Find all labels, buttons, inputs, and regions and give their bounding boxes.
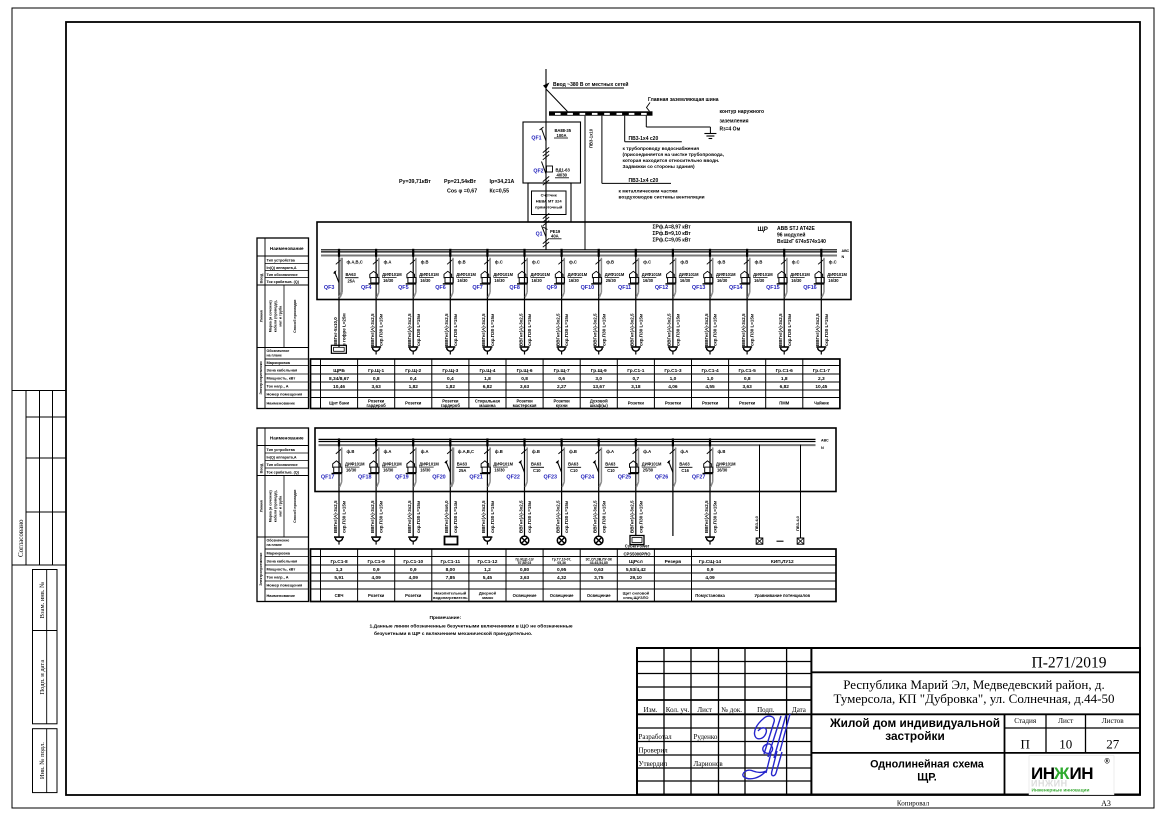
svg-text:ΣРф.А=8,97 кВт: ΣРф.А=8,97 кВт <box>653 224 692 231</box>
svg-text:Ру=39,71кВт: Ру=39,71кВт <box>399 179 431 185</box>
svg-text:АВС: АВС <box>821 439 829 443</box>
svg-text:16/30: 16/30 <box>383 468 394 473</box>
svg-text:16/30: 16/30 <box>420 468 431 473</box>
svg-text:ДИФ101М: ДИФ101М <box>716 272 736 277</box>
svg-text:Освещение: Освещение <box>513 593 537 598</box>
svg-text:ДИФ101М: ДИФ101М <box>382 272 402 277</box>
svg-text:2,3: 2,3 <box>818 376 825 382</box>
svg-text:ΣРф.С=9,05 кВт: ΣРф.С=9,05 кВт <box>653 236 692 243</box>
svg-text:Гр.С1-4: Гр.С1-4 <box>701 368 719 374</box>
svg-text:ВВГнг(А)-3х2,5: ВВГнг(А)-3х2,5 <box>481 500 486 533</box>
svg-text:8,34/8,67: 8,34/8,67 <box>329 376 349 382</box>
svg-text:шкаф(ы): шкаф(ы) <box>590 403 609 408</box>
svg-text:QF24: QF24 <box>581 475 594 481</box>
svg-text:57,ВУ,03: 57,ВУ,03 <box>518 561 532 565</box>
svg-text:Однолинейная схема: Однолинейная схема <box>870 759 985 771</box>
svg-text:ВВГнг(А)-3х2,5: ВВГнг(А)-3х2,5 <box>333 500 338 533</box>
svg-text:Марка (и сечение): Марка (и сечение) <box>269 299 273 332</box>
svg-text:гардероб: гардероб <box>367 403 387 408</box>
svg-text:Лист: Лист <box>697 706 712 714</box>
svg-text:ABB STJ AT42E: ABB STJ AT42E <box>777 226 815 232</box>
svg-text:скр.ПЗ0 L=15м: скр.ПЗ0 L=15м <box>638 313 643 346</box>
svg-text:Гр.Щ-1: Гр.Щ-1 <box>368 368 384 374</box>
svg-text:4,09: 4,09 <box>371 575 381 581</box>
svg-text:ЩРБ: ЩРБ <box>333 368 345 374</box>
svg-text:Розетки: Розетки <box>405 593 422 598</box>
svg-text:Гр.Щ-3: Гр.Щ-3 <box>442 368 458 374</box>
svg-text:0,6: 0,6 <box>558 376 565 382</box>
svg-text:13,67: 13,67 <box>593 384 605 390</box>
svg-text:ПВ3-4,0: ПВ3-4,0 <box>795 515 800 531</box>
svg-text:N: N <box>842 255 845 259</box>
svg-text:0,4: 0,4 <box>447 376 454 382</box>
svg-text:0,9: 0,9 <box>410 567 417 573</box>
svg-text:Ток срабатыв. (Q): Ток срабатыв. (Q) <box>267 280 300 284</box>
svg-text:QF13: QF13 <box>692 285 705 291</box>
svg-text:СyberPower: СyberPower <box>625 544 650 549</box>
svg-text:ВВГнг(А)-3х2,5: ВВГнг(А)-3х2,5 <box>630 313 635 346</box>
svg-text:QF21: QF21 <box>469 475 482 481</box>
svg-text:Ларионов: Ларионов <box>694 760 724 768</box>
svg-text:застройки: застройки <box>885 729 944 743</box>
svg-text:ф.В: ф.В <box>606 259 614 264</box>
svg-text:Гр.С1-12: Гр.С1-12 <box>478 559 498 565</box>
svg-text:Гр.Щ-7: Гр.Щ-7 <box>554 368 570 374</box>
svg-text:Гр.С1-3: Гр.С1-3 <box>664 368 682 374</box>
svg-text:Тип обозначение: Тип обозначение <box>267 463 298 467</box>
svg-text:ВВГнг(А)-3х2,5: ВВГнг(А)-3х2,5 <box>370 313 375 346</box>
svg-text:ф.С: ф.С <box>495 259 503 264</box>
svg-text:безучетными в ЩР с включением: безучетными в ЩР с включением механическ… <box>374 630 533 637</box>
svg-text:0,9: 0,9 <box>373 567 380 573</box>
svg-text:Ток срабатыв. (Q): Ток срабатыв. (Q) <box>267 471 300 475</box>
svg-text:Гр.Щ-9: Гр.Щ-9 <box>591 368 607 374</box>
svg-text:QF11: QF11 <box>618 285 631 291</box>
svg-text:Резерв: Резерв <box>665 559 682 565</box>
svg-text:10,45: 10,45 <box>815 384 827 390</box>
svg-text:ВВГнг(А)-3х2,5: ВВГнг(А)-3х2,5 <box>407 313 412 346</box>
svg-text:водонагреватель: водонагреватель <box>433 595 468 600</box>
svg-text:Линия: Линия <box>260 310 264 322</box>
svg-text:Линия: Линия <box>260 500 264 512</box>
svg-text:к металлическим частям: к металлическим частям <box>619 190 679 195</box>
svg-text:3,18: 3,18 <box>631 384 641 390</box>
svg-text:мат и труба: мат и труба <box>279 495 283 517</box>
svg-text:6,82: 6,82 <box>780 384 790 390</box>
svg-text:ф.С: ф.С <box>532 259 540 264</box>
svg-text:0,7: 0,7 <box>633 376 640 382</box>
svg-text:Гр.С1-11: Гр.С1-11 <box>441 559 461 565</box>
svg-text:Дата: Дата <box>792 706 807 714</box>
svg-text:ВВГнг(А)-3х2,5: ВВГнг(А)-3х2,5 <box>370 500 375 533</box>
svg-text:ДИФ101М: ДИФ101М <box>456 272 476 277</box>
svg-text:кухни: кухни <box>556 403 568 408</box>
svg-text:ВА63: ВА63 <box>605 462 616 467</box>
svg-text:воздуховодов системы вентиляци: воздуховодов системы вентиляции <box>619 196 705 201</box>
svg-text:Мощность, кВт: Мощность, кВт <box>267 567 296 572</box>
svg-text:ПВ3-1х4 с20: ПВ3-1х4 с20 <box>629 136 659 142</box>
svg-text:ВВГнг(А)-5х6,0: ВВГнг(А)-5х6,0 <box>444 500 449 533</box>
svg-text:ф.А,В,С: ф.А,В,С <box>458 449 474 454</box>
svg-text:Рр=21,54кВт: Рр=21,54кВт <box>444 179 477 185</box>
svg-text:1.Данные линии обозначенные бе: 1.Данные линии обозначенные безучетными … <box>370 623 573 630</box>
svg-text:16/30: 16/30 <box>828 278 839 283</box>
svg-text:Изм.: Изм. <box>644 706 658 714</box>
svg-text:ДИФ101М: ДИФ101М <box>827 272 847 277</box>
svg-text:Лист: Лист <box>1058 717 1074 725</box>
svg-text:1,0: 1,0 <box>707 376 714 382</box>
svg-text:1,2: 1,2 <box>484 567 491 573</box>
svg-text:ДИФ101М: ДИФ101М <box>382 462 402 467</box>
svg-text:QF9: QF9 <box>547 285 557 291</box>
svg-text:QF8: QF8 <box>509 285 519 291</box>
svg-text:Маркировка: Маркировка <box>267 360 291 365</box>
svg-text:Кс=0,55: Кс=0,55 <box>490 188 510 194</box>
svg-text:16/30: 16/30 <box>383 278 394 283</box>
svg-text:QF19: QF19 <box>395 475 408 481</box>
svg-text:®: ® <box>1105 758 1111 766</box>
svg-text:3,0: 3,0 <box>595 376 602 382</box>
svg-text:Республика Марий Эл, Медведевс: Республика Марий Эл, Медведевский район,… <box>843 677 1104 692</box>
svg-text:Взам. инв. №: Взам. инв. № <box>39 582 46 619</box>
svg-text:ф.А: ф.А <box>680 449 688 454</box>
svg-text:Q1: Q1 <box>536 232 543 238</box>
svg-text:25А: 25А <box>459 468 467 473</box>
svg-text:16/30: 16/30 <box>754 278 765 283</box>
svg-text:43-63,54,85: 43-63,54,85 <box>590 561 608 565</box>
svg-text:29,10: 29,10 <box>630 575 642 581</box>
svg-text:скр.ПЗ0 L=15м: скр.ПЗ0 L=15м <box>416 313 421 346</box>
svg-text:скр.ПЗ0 L=15м: скр.ПЗ0 L=15м <box>601 313 606 346</box>
svg-text:Задвижки со стороны здания): Задвижки со стороны здания) <box>623 164 695 170</box>
svg-text:Розетки: Розетки <box>702 401 719 406</box>
svg-text:Помустановка: Помустановка <box>695 593 725 598</box>
svg-text:скр.ПЗ0 L=15м: скр.ПЗ0 L=15м <box>601 500 606 533</box>
svg-text:3,63: 3,63 <box>742 384 752 390</box>
svg-text:QF25: QF25 <box>618 475 631 481</box>
svg-text:16/30: 16/30 <box>494 468 505 473</box>
svg-text:Подп.: Подп. <box>757 706 775 714</box>
svg-text:ВВГнг(А)-3х2,5: ВВГнг(А)-3х2,5 <box>778 313 783 346</box>
svg-text:05,36: 05,36 <box>557 561 566 565</box>
svg-text:Розетки: Розетки <box>628 401 645 406</box>
svg-text:КИП,ЛУ12: КИП,ЛУ12 <box>771 559 794 565</box>
svg-text:П-271/2019: П-271/2019 <box>1032 655 1107 672</box>
svg-text:скр.ПЗ0 L=15м: скр.ПЗ0 L=15м <box>787 313 792 346</box>
svg-text:6,82: 6,82 <box>483 384 493 390</box>
svg-text:QF7: QF7 <box>472 285 482 291</box>
svg-text:ВВГнг(А)-3х2,5: ВВГнг(А)-3х2,5 <box>593 500 598 533</box>
svg-text:16/30: 16/30 <box>680 278 691 283</box>
svg-text:ф.В: ф.В <box>718 259 726 264</box>
svg-text:ф.В: ф.В <box>532 449 540 454</box>
svg-text:QF27: QF27 <box>692 475 705 481</box>
svg-text:ΣРф.В=9,10 кВт: ΣРф.В=9,10 кВт <box>653 230 692 237</box>
svg-text:замок: замок <box>482 595 494 600</box>
svg-text:ПММ: ПММ <box>779 401 789 406</box>
svg-text:ДИФ101М: ДИФ101М <box>419 462 439 467</box>
svg-text:скр.ПЗ0 L=15м: скр.ПЗ0 L=15м <box>379 313 384 346</box>
svg-text:16/30: 16/30 <box>532 278 543 283</box>
svg-text:4,55: 4,55 <box>705 384 715 390</box>
svg-text:Жилой дом индивидуальной: Жилой дом индивидуальной <box>829 716 1000 730</box>
svg-text:Способ прокладки: Способ прокладки <box>293 300 297 333</box>
svg-text:16/30: 16/30 <box>457 278 468 283</box>
svg-text:Тумерсола, КП "Дубровка", ул.: Тумерсола, КП "Дубровка", ул. Солнечная,… <box>834 691 1115 706</box>
svg-text:скр.ПЗ0 L=15м: скр.ПЗ0 L=15м <box>527 500 532 533</box>
svg-text:3,63: 3,63 <box>520 575 530 581</box>
svg-text:Гр.С1-9: Гр.С1-9 <box>368 559 386 565</box>
svg-text:25/30: 25/30 <box>606 278 617 283</box>
svg-text:АВС: АВС <box>842 249 850 253</box>
svg-text:4,09: 4,09 <box>705 575 715 581</box>
svg-text:ВВГнг(А)-3х2,5: ВВГнг(А)-3х2,5 <box>667 313 672 346</box>
svg-text:3,75: 3,75 <box>594 575 604 581</box>
svg-text:Щит бани: Щит бани <box>329 401 350 406</box>
svg-text:Главная заземляющая шина: Главная заземляющая шина <box>648 97 719 103</box>
svg-text:скр.ПЗ0 L=15м: скр.ПЗ0 L=15м <box>638 500 643 533</box>
svg-text:Rз=4 Ом: Rз=4 Ом <box>720 126 741 132</box>
svg-text:Освещение: Освещение <box>550 593 574 598</box>
svg-text:ф.С: ф.С <box>829 259 837 264</box>
svg-text:QF4: QF4 <box>361 285 371 291</box>
svg-text:10,46: 10,46 <box>333 384 345 390</box>
svg-text:QF5: QF5 <box>398 285 408 291</box>
svg-text:0,95: 0,95 <box>557 567 567 573</box>
svg-text:ф.А: ф.А <box>643 449 651 454</box>
svg-text:Кол. уч.: Кол. уч. <box>666 706 690 714</box>
svg-text:Iн(Q) аппарата,А: Iн(Q) аппарата,А <box>267 456 297 460</box>
svg-text:НЕВА МТ 324: НЕВА МТ 324 <box>536 199 563 204</box>
svg-text:Номер помещения: Номер помещения <box>267 583 303 588</box>
svg-text:ПВ3-1х10: ПВ3-1х10 <box>589 128 594 148</box>
svg-text:ДИФ101М: ДИФ101М <box>642 462 662 467</box>
svg-text:Проверил: Проверил <box>639 746 669 754</box>
svg-text:ВА63: ВА63 <box>346 272 357 277</box>
svg-text:ВхШхГ 674х574х140: ВхШхГ 674х574х140 <box>777 239 826 245</box>
svg-text:Тип обозначение: Тип обозначение <box>267 273 298 277</box>
svg-text:Розетки: Розетки <box>739 401 756 406</box>
svg-text:П: П <box>1021 737 1030 752</box>
svg-text:Розетки: Розетки <box>405 401 422 406</box>
svg-text:ДИФ101М: ДИФ101М <box>642 272 662 277</box>
svg-text:Cos φ =0,67: Cos φ =0,67 <box>447 188 477 194</box>
svg-text:заземления: заземления <box>720 118 749 124</box>
svg-text:кабеля (провода),: кабеля (провода), <box>274 490 278 522</box>
svg-text:ВВГнг(А)-3х2,5: ВВГнг(А)-3х2,5 <box>741 313 746 346</box>
svg-text:Разработал: Разработал <box>639 733 673 741</box>
svg-text:Стадия: Стадия <box>1014 717 1037 725</box>
svg-text:скр.ПЗ0 L=15м: скр.ПЗ0 L=15м <box>750 313 755 346</box>
svg-text:0,8: 0,8 <box>373 376 380 382</box>
svg-text:Розетки: Розетки <box>368 593 385 598</box>
svg-text:10: 10 <box>1059 737 1072 752</box>
svg-text:ф.А: ф.А <box>384 259 392 264</box>
svg-text:16/30: 16/30 <box>643 278 654 283</box>
svg-text:5,91: 5,91 <box>334 575 344 581</box>
svg-text:QF18: QF18 <box>358 475 371 481</box>
svg-text:QF22: QF22 <box>506 475 519 481</box>
svg-text:ДИФ101М: ДИФ101М <box>790 272 810 277</box>
svg-text:скр.ПЗ0 L=15м: скр.ПЗ0 L=15м <box>490 313 495 346</box>
svg-text:на плане: на плане <box>267 543 282 547</box>
svg-text:0,9: 0,9 <box>707 567 714 573</box>
svg-text:Наименование: Наименование <box>267 593 296 598</box>
svg-text:25/30: 25/30 <box>643 468 654 473</box>
svg-text:ВВГнг(А)-3х2,5: ВВГнг(А)-3х2,5 <box>593 313 598 346</box>
svg-text:0,8: 0,8 <box>521 376 528 382</box>
svg-text:ф.А: ф.А <box>606 449 614 454</box>
svg-text:ДИФ101М: ДИФ101М <box>753 272 773 277</box>
svg-text:3,63: 3,63 <box>371 384 381 390</box>
svg-text:5,45: 5,45 <box>483 575 493 581</box>
svg-text:прямоточный: прямоточный <box>535 205 563 210</box>
svg-text:QF16: QF16 <box>803 285 816 291</box>
svg-text:QF23: QF23 <box>544 475 557 481</box>
svg-text:Тип устройства: Тип устройства <box>267 448 296 452</box>
svg-text:мастерская: мастерская <box>513 403 537 408</box>
svg-text:ЩРсл: ЩРсл <box>629 559 643 565</box>
svg-text:кабеля (провода),: кабеля (провода), <box>274 300 278 332</box>
svg-text:Инв. № подл.: Инв. № подл. <box>39 742 46 779</box>
svg-text:Гр.Щ-4: Гр.Щ-4 <box>479 368 495 374</box>
svg-text:2,27: 2,27 <box>557 384 567 390</box>
svg-text:к трубопроводу водоснабжения: к трубопроводу водоснабжения <box>623 145 700 152</box>
svg-text:ВВГнг(А)-3х2,5: ВВГнг(А)-3х2,5 <box>518 500 523 533</box>
svg-text:ВВГнг(А)-3х2,5: ВВГнг(А)-3х2,5 <box>407 500 412 533</box>
svg-text:16/30: 16/30 <box>494 278 505 283</box>
svg-text:Подп. и дата: Подп. и дата <box>39 660 46 695</box>
svg-text:Ввод: Ввод <box>260 273 264 283</box>
svg-text:скр.ПЗ0 L=15м: скр.ПЗ0 L=15м <box>342 500 347 533</box>
svg-text:Гр.С1-6: Гр.С1-6 <box>776 368 794 374</box>
svg-text:ВВГнг(А)-3х2,5: ВВГнг(А)-3х2,5 <box>555 500 560 533</box>
svg-text:ВВГнг(А)-3х2,5: ВВГнг(А)-3х2,5 <box>555 313 560 346</box>
svg-text:в гофре L=25м: в гофре L=25м <box>341 313 347 346</box>
svg-text:Маркировка: Маркировка <box>267 550 291 555</box>
svg-text:ДИФ101М: ДИФ101М <box>531 272 551 277</box>
svg-text:ЩР.: ЩР. <box>917 772 937 784</box>
svg-text:Способ прокладки: Способ прокладки <box>293 490 297 523</box>
svg-text:скр.ПЗ0 L=15м: скр.ПЗ0 L=15м <box>379 500 384 533</box>
svg-text:96 модулей: 96 модулей <box>777 232 806 239</box>
svg-text:100А: 100А <box>557 133 567 138</box>
svg-text:8,00: 8,00 <box>446 567 456 573</box>
svg-text:ВА63: ВА63 <box>568 462 579 467</box>
svg-text:QF14: QF14 <box>729 285 742 291</box>
svg-text:ПВ3-1х4 с20: ПВ3-1х4 с20 <box>629 178 659 184</box>
svg-text:скр.ПЗ0 L=15м: скр.ПЗ0 L=15м <box>713 500 718 533</box>
svg-text:Iн(Q) аппарата,А: Iн(Q) аппарата,А <box>267 266 297 270</box>
svg-text:ф.В: ф.В <box>755 259 763 264</box>
svg-text:40А: 40А <box>551 234 559 239</box>
svg-text:QF20: QF20 <box>432 475 445 481</box>
svg-text:Счётчик: Счётчик <box>541 193 557 198</box>
svg-text:ф.С: ф.С <box>643 259 651 264</box>
svg-text:ДИФ101М: ДИФ101М <box>493 272 513 277</box>
svg-text:0,8: 0,8 <box>744 376 751 382</box>
svg-text:Гр.С1-8: Гр.С1-8 <box>330 559 348 565</box>
svg-text:скр.ПЗ0 L=15м: скр.ПЗ0 L=15м <box>564 313 569 346</box>
svg-text:1,8: 1,8 <box>781 376 788 382</box>
svg-text:27: 27 <box>1106 737 1120 752</box>
svg-text:скр.ПЗ0 L=15м: скр.ПЗ0 L=15м <box>676 313 681 346</box>
svg-text:Уравнивание потенциалов: Уравнивание потенциалов <box>755 593 811 598</box>
svg-text:Инженерные инновации: Инженерные инновации <box>1032 788 1090 794</box>
svg-text:Руденко: Руденко <box>694 733 718 741</box>
svg-text:скр.ПЗ0 L=15м: скр.ПЗ0 L=15м <box>527 313 532 346</box>
svg-text:ДИФ101М: ДИФ101М <box>568 272 588 277</box>
svg-text:Гр.Щ-6: Гр.Щ-6 <box>517 368 533 374</box>
svg-text:скр.ПЗ0 L=15м: скр.ПЗ0 L=15м <box>490 500 495 533</box>
svg-text:0,4: 0,4 <box>410 376 417 382</box>
svg-text:Наименование: Наименование <box>270 436 304 441</box>
svg-text:N: N <box>821 446 824 450</box>
svg-text:1,8: 1,8 <box>484 376 491 382</box>
svg-text:ВВГнг(А)-3х2,5: ВВГнг(А)-3х2,5 <box>481 313 486 346</box>
svg-text:ДИФ101М: ДИФ101М <box>679 272 699 277</box>
svg-text:Гр.СЩ-14: Гр.СЩ-14 <box>699 559 721 565</box>
svg-text:16/30: 16/30 <box>346 468 357 473</box>
svg-text:ф.А: ф.А <box>384 449 392 454</box>
svg-text:Зона кабельная: Зона кабельная <box>267 558 298 563</box>
svg-text:Мощность, кВт: Мощность, кВт <box>267 376 296 381</box>
svg-text:скр.ПЗ0 L=15м: скр.ПЗ0 L=15м <box>564 500 569 533</box>
svg-text:QF12: QF12 <box>655 285 668 291</box>
svg-text:мат и труба: мат и труба <box>279 305 283 327</box>
svg-text:С10: С10 <box>607 468 615 473</box>
svg-text:ДИФ101М: ДИФ101М <box>493 462 513 467</box>
svg-text:ф.В: ф.В <box>495 449 503 454</box>
svg-text:Розетки: Розетки <box>665 401 682 406</box>
svg-text:1,82: 1,82 <box>446 384 456 390</box>
svg-text:ДИФ101М: ДИФ101М <box>605 272 625 277</box>
svg-text:С10: С10 <box>533 468 541 473</box>
svg-text:СВЧ: СВЧ <box>335 593 344 598</box>
svg-text:4,09: 4,09 <box>409 575 419 581</box>
svg-text:на плане: на плане <box>267 353 282 357</box>
svg-text:ф.С: ф.С <box>792 259 800 264</box>
svg-text:Наименование: Наименование <box>270 246 304 251</box>
svg-text:QF6: QF6 <box>435 285 445 291</box>
svg-text:ВВГнг(А)-3х2,5: ВВГнг(А)-3х2,5 <box>704 500 709 533</box>
svg-text:Чайник: Чайник <box>814 401 830 406</box>
svg-text:Тип устройства: Тип устройства <box>267 259 296 263</box>
svg-text:ф.А: ф.А <box>421 449 429 454</box>
svg-text:ВВГнг(А)-3х2,5: ВВГнг(А)-3х2,5 <box>444 313 449 346</box>
svg-text:ИНЖИН: ИНЖИН <box>1031 779 1068 789</box>
svg-text:Зона кабельная: Зона кабельная <box>267 367 298 372</box>
svg-text:ВВГнг(А)-3х2,5: ВВГнг(А)-3х2,5 <box>518 313 523 346</box>
svg-text:25А: 25А <box>348 278 356 283</box>
svg-text:4,32: 4,32 <box>557 575 567 581</box>
svg-text:ДИФ101М: ДИФ101М <box>345 462 365 467</box>
svg-text:Ток нагр., А: Ток нагр., А <box>267 575 289 580</box>
svg-text:ф.В: ф.В <box>718 449 726 454</box>
svg-text:(присоединяется на чистке труб: (присоединяется на чистке трубопровода, <box>623 151 725 158</box>
svg-text:ИН: ИН <box>1070 764 1094 783</box>
svg-text:Гр.С1-5: Гр.С1-5 <box>739 368 757 374</box>
svg-text:ВА63: ВА63 <box>457 462 468 467</box>
svg-text:ДИФ101М: ДИФ101М <box>716 462 736 467</box>
svg-text:№ док.: № док. <box>721 706 742 714</box>
svg-text:1,0: 1,0 <box>670 376 677 382</box>
svg-text:ДИФ101М: ДИФ101М <box>419 272 439 277</box>
svg-text:40/30: 40/30 <box>557 173 568 178</box>
svg-text:Листов: Листов <box>1102 717 1125 725</box>
svg-text:Ввод ~380 В от местных сетей: Ввод ~380 В от местных сетей <box>553 81 629 88</box>
svg-text:ВВГнг-5х10,0: ВВГнг-5х10,0 <box>333 317 338 346</box>
